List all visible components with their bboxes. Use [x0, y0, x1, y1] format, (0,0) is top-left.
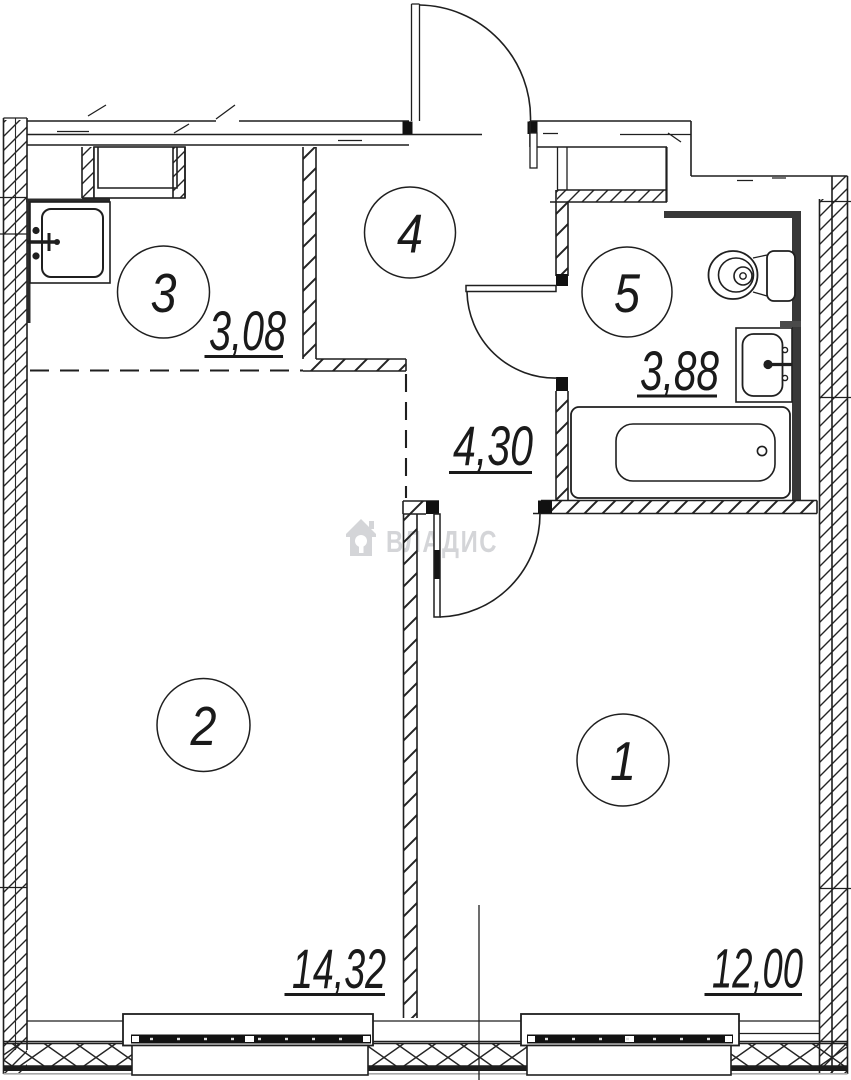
svg-text:4,30: 4,30 [453, 414, 533, 477]
svg-text:3: 3 [151, 262, 177, 324]
svg-text:2: 2 [190, 695, 217, 757]
svg-text:12,00: 12,00 [712, 937, 803, 1000]
svg-text:5: 5 [614, 262, 640, 324]
svg-text:3,08: 3,08 [209, 299, 286, 362]
svg-text:4: 4 [397, 203, 423, 265]
svg-text:1: 1 [610, 730, 636, 792]
svg-text:3,88: 3,88 [640, 339, 719, 402]
svg-text:14,32: 14,32 [292, 937, 386, 1000]
